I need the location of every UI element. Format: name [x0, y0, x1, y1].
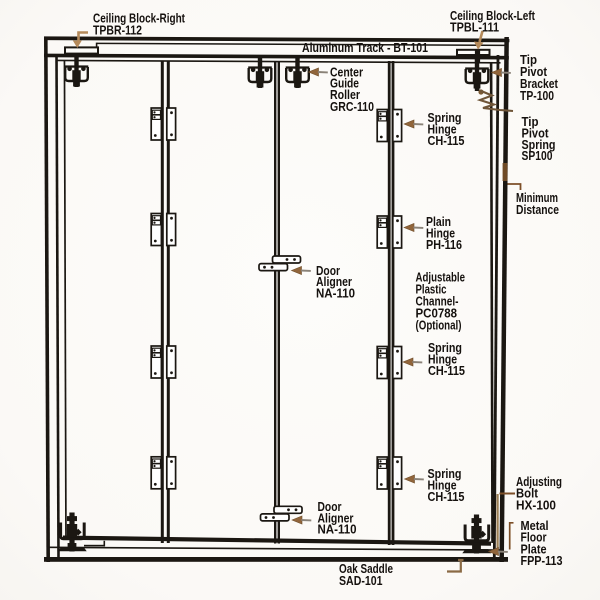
- svg-text:FPP-113: FPP-113: [521, 554, 563, 568]
- svg-text:TPBR-112: TPBR-112: [93, 23, 142, 37]
- svg-text:SAD-101: SAD-101: [339, 574, 383, 588]
- svg-text:TP-100: TP-100: [520, 89, 554, 103]
- svg-text:PH-116: PH-116: [426, 238, 462, 252]
- svg-text:SP100: SP100: [522, 149, 553, 163]
- svg-text:Distance: Distance: [516, 203, 559, 217]
- svg-text:NA-110: NA-110: [316, 286, 355, 300]
- svg-text:CH-115: CH-115: [428, 134, 465, 148]
- svg-text:Aluminum Track - BT-101: Aluminum Track - BT-101: [302, 41, 428, 55]
- svg-text:HX-100: HX-100: [516, 498, 556, 512]
- svg-text:CH-115: CH-115: [428, 490, 465, 504]
- svg-text:GRC-110: GRC-110: [330, 100, 374, 114]
- svg-text:TPBL-111: TPBL-111: [450, 21, 499, 35]
- svg-text:(Optional): (Optional): [416, 319, 462, 333]
- svg-text:NA-110: NA-110: [318, 523, 357, 537]
- svg-text:CH-115: CH-115: [428, 364, 465, 378]
